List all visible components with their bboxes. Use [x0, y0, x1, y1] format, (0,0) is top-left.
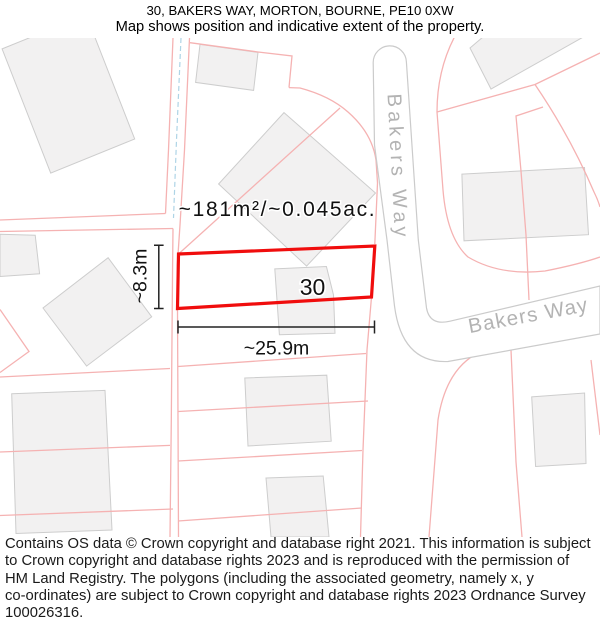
svg-text:~25.9m: ~25.9m [244, 338, 310, 360]
svg-text:~181m²/~0.045ac.: ~181m²/~0.045ac. [179, 198, 377, 221]
svg-text:~8.3m: ~8.3m [130, 249, 152, 304]
svg-text:30: 30 [300, 274, 326, 300]
